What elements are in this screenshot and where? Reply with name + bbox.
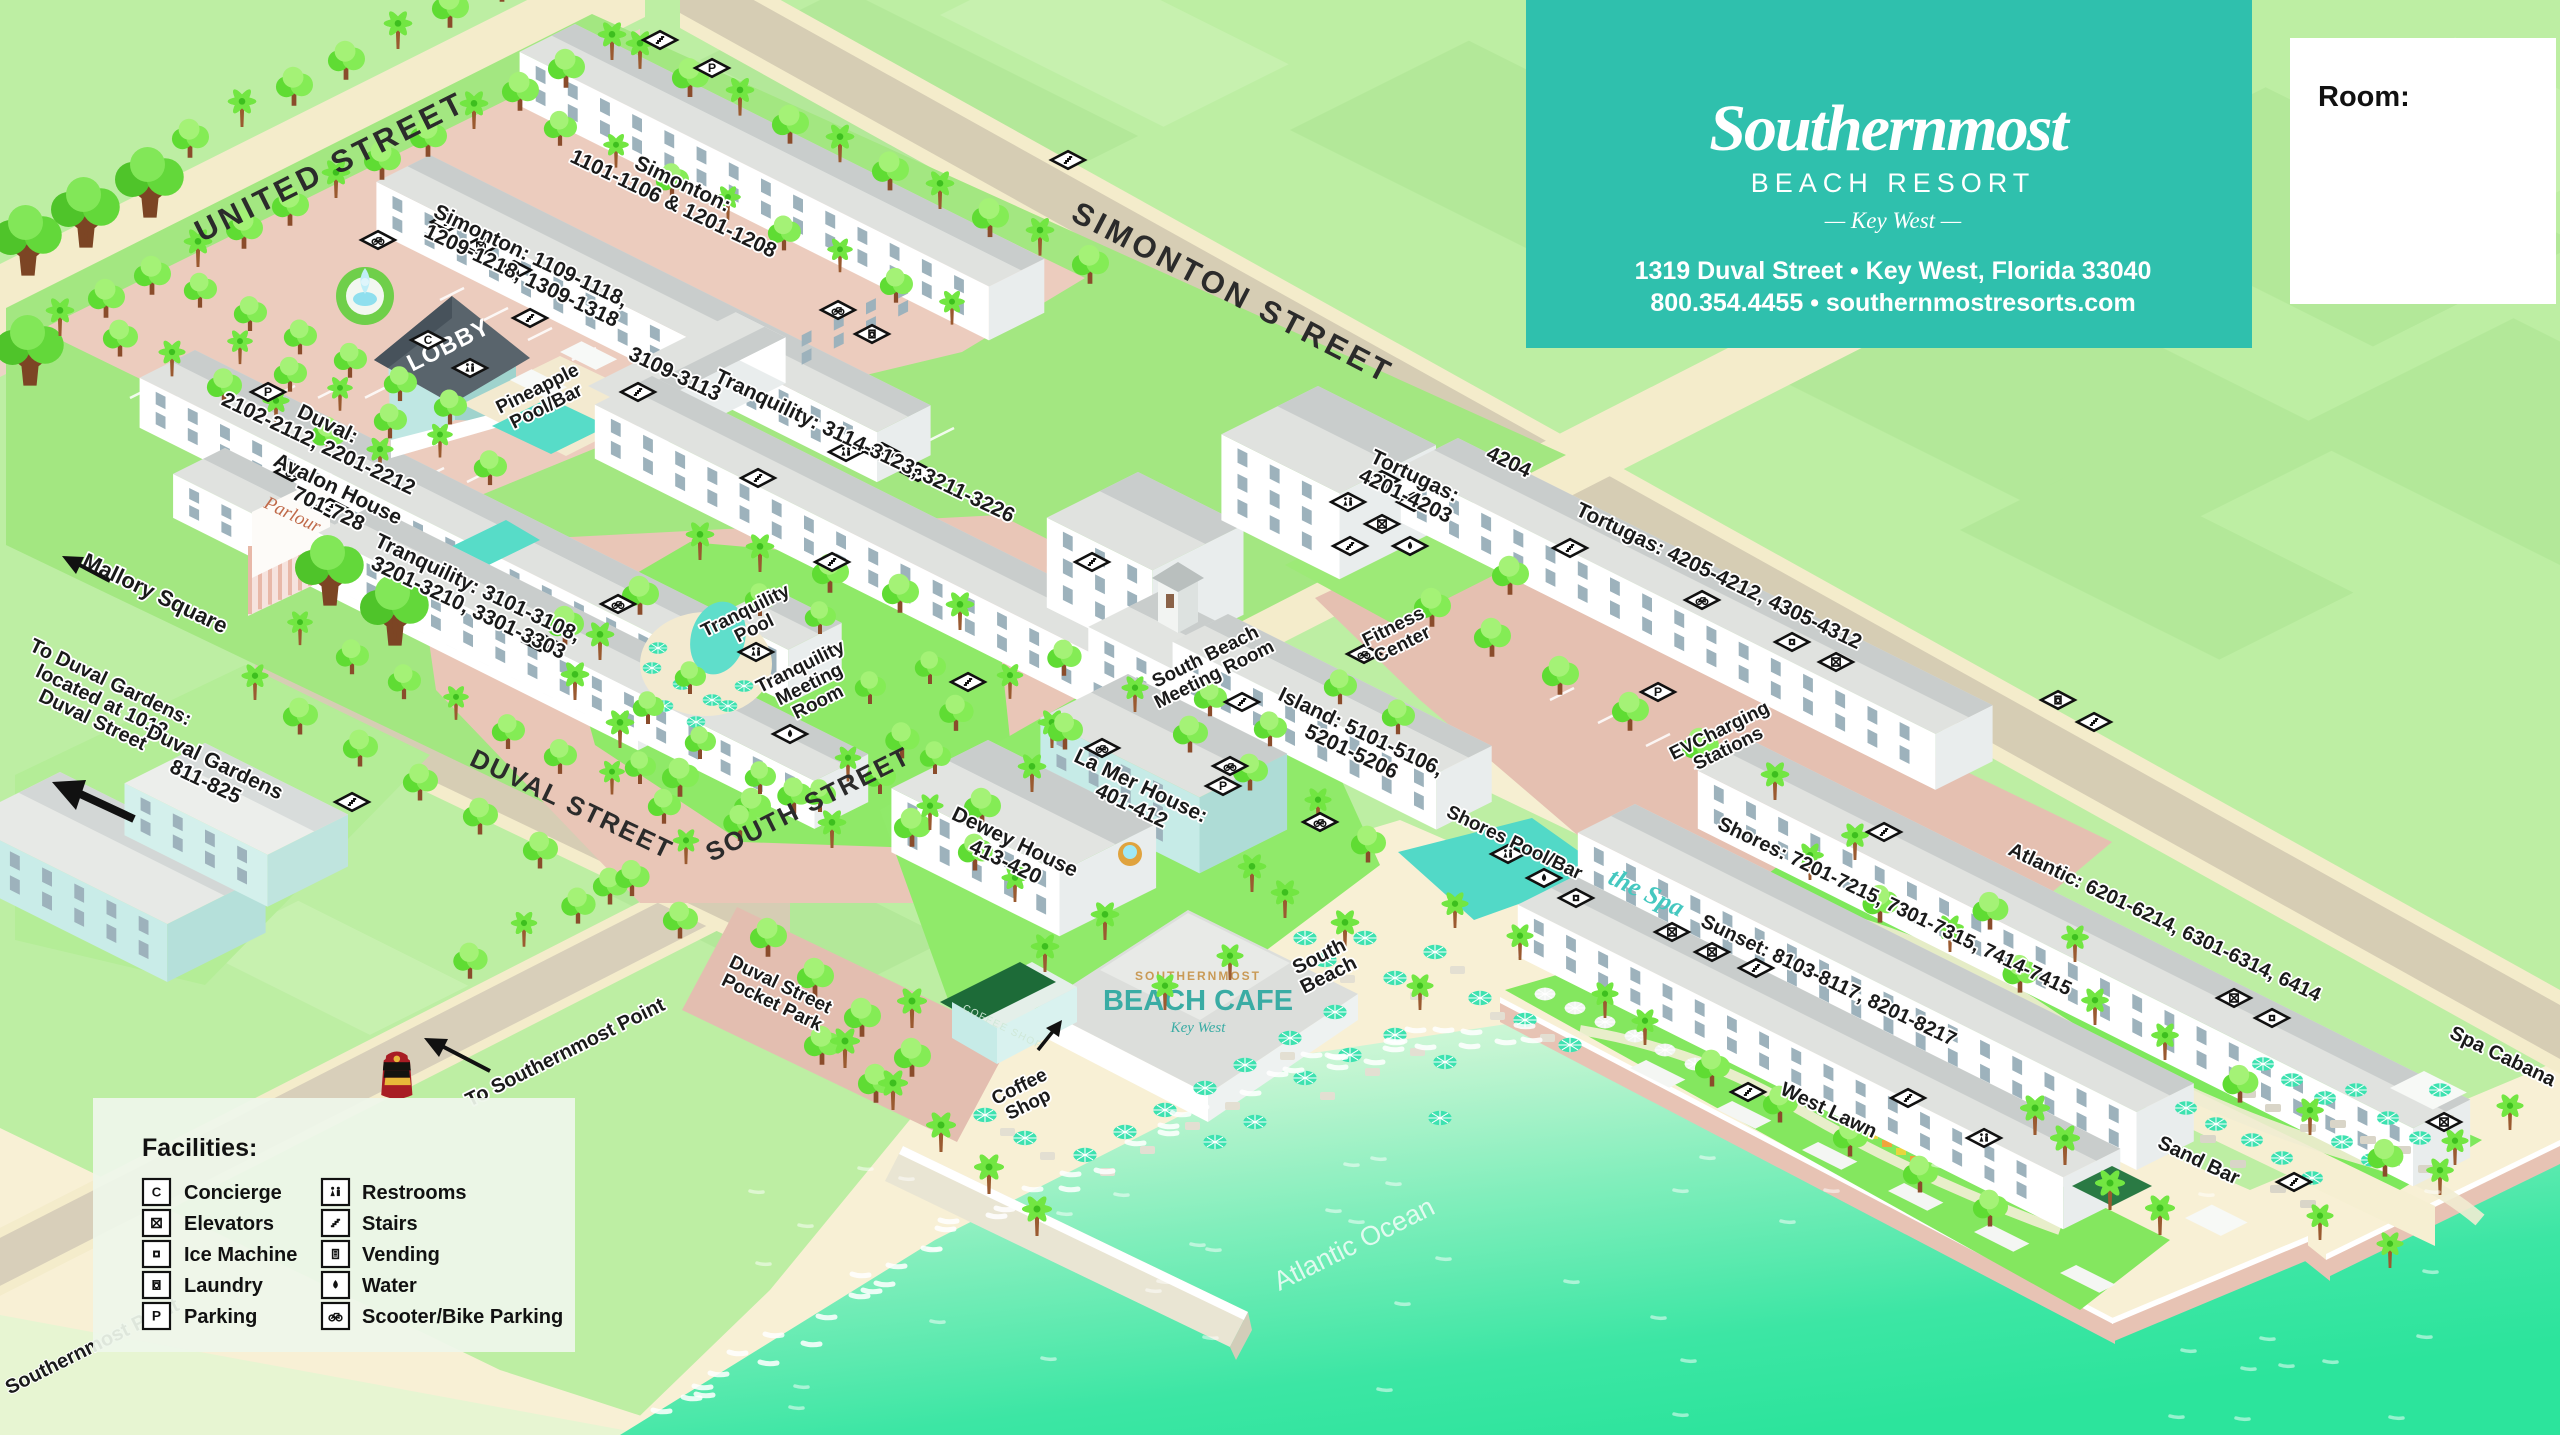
svg-text:Concierge: Concierge <box>184 1182 282 1204</box>
svg-text:BEACH RESORT: BEACH RESORT <box>1751 168 2036 198</box>
svg-text:Water: Water <box>362 1275 417 1297</box>
svg-text:P: P <box>708 61 716 75</box>
svg-text:Laundry: Laundry <box>184 1275 264 1297</box>
svg-text:Restrooms: Restrooms <box>362 1182 466 1204</box>
svg-text:800.354.4455 • southernmostres: 800.354.4455 • southernmostresorts.com <box>1650 289 2135 317</box>
svg-text:Key West: Key West <box>1170 1020 1227 1036</box>
svg-text:BEACH CAFE: BEACH CAFE <box>1103 985 1293 1017</box>
svg-text:Southernmost: Southernmost <box>1709 92 2070 165</box>
svg-text:P: P <box>1654 685 1662 699</box>
svg-text:Elevators: Elevators <box>184 1213 274 1235</box>
svg-text:Parking: Parking <box>184 1306 257 1328</box>
svg-text:C: C <box>424 333 433 347</box>
svg-text:P: P <box>264 385 272 399</box>
svg-text:Room:: Room: <box>2318 81 2410 113</box>
svg-text:Scooter/Bike Parking: Scooter/Bike Parking <box>362 1306 563 1328</box>
svg-text:Facilities:: Facilities: <box>142 1134 257 1162</box>
svg-text:P: P <box>152 1309 161 1324</box>
svg-text:P: P <box>1219 779 1227 793</box>
svg-text:C: C <box>152 1185 162 1200</box>
svg-text:— Key West —: — Key West — <box>1824 208 1962 233</box>
svg-text:Ice Machine: Ice Machine <box>184 1244 297 1266</box>
svg-text:1319 Duval Street • Key West,: 1319 Duval Street • Key West, Florida 33… <box>1635 257 2152 285</box>
svg-text:Vending: Vending <box>362 1244 440 1266</box>
svg-text:SOUTHERNMOST: SOUTHERNMOST <box>1135 969 1261 983</box>
svg-text:Stairs: Stairs <box>362 1213 418 1235</box>
